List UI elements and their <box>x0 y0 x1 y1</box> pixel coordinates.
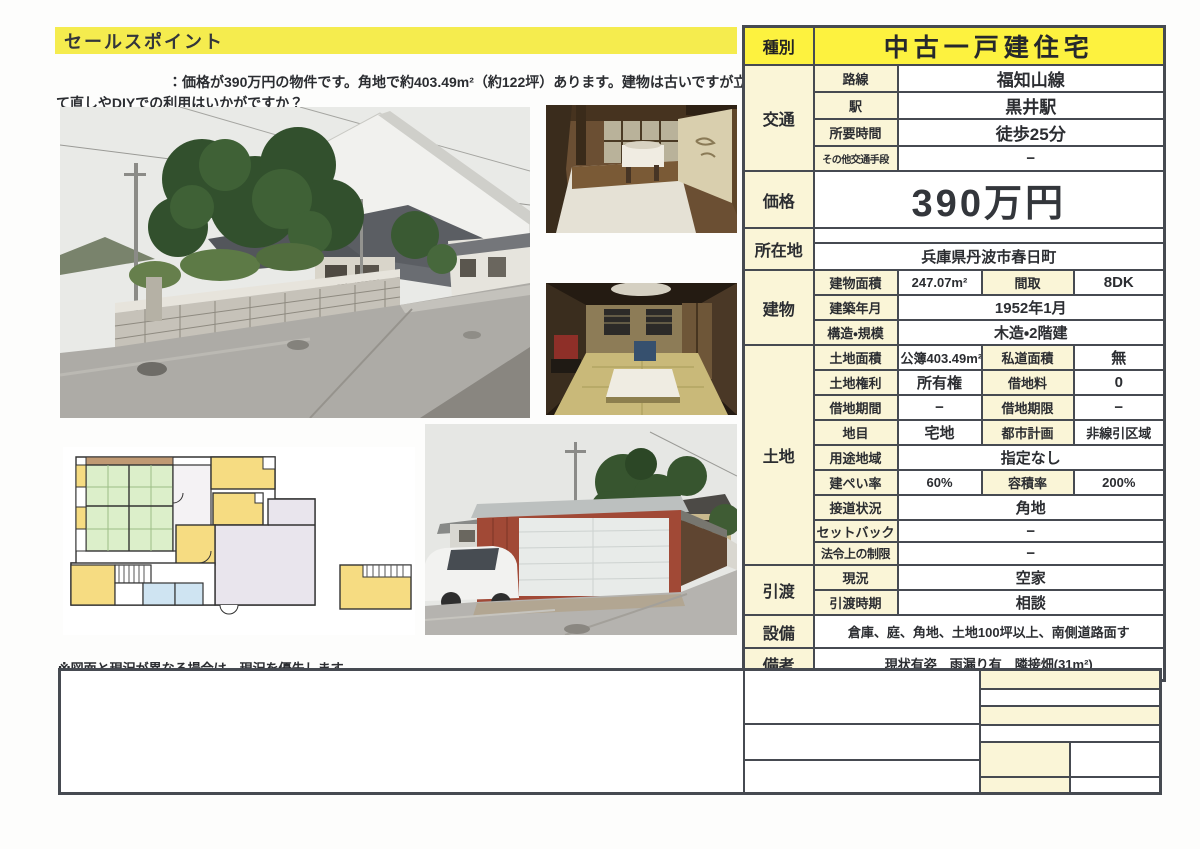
broker-grid-label-2 <box>981 778 1071 792</box>
transport-label: 交通 <box>744 65 814 171</box>
row-type: 種別 中古一戸建住宅 <box>744 27 1165 66</box>
private-road-value: 無 <box>1074 345 1165 370</box>
city-plan-label: 都市計画 <box>982 420 1074 445</box>
broker-grid-value-1 <box>1071 743 1159 776</box>
lease-limit-label: 借地期限 <box>982 395 1074 420</box>
type-value: 中古一戸建住宅 <box>814 27 1165 66</box>
land-area-label: 土地面積 <box>814 345 898 370</box>
handover-label: 引渡 <box>744 565 814 615</box>
floor-plan <box>63 447 415 635</box>
building-area-value: 247.07m² <box>898 270 982 295</box>
broker-info-block <box>58 668 1162 795</box>
type-label: 種別 <box>744 27 814 66</box>
broker-middle-column <box>743 671 979 792</box>
land-area-value: 公簿403.49m² <box>898 345 982 370</box>
land-category-value: 宅地 <box>898 420 982 445</box>
photo-interior-corridor <box>546 105 737 233</box>
coverage-ratio-label: 建ぺい率 <box>814 470 898 495</box>
built-date-label: 建築年月 <box>814 295 898 320</box>
row-handover-1: 引渡 現況 空家 <box>744 565 1165 590</box>
location-spacer <box>814 228 1165 243</box>
lease-fee-value: 0 <box>1074 370 1165 395</box>
city-plan-value: 非線引区域 <box>1074 420 1165 445</box>
land-category-label: 地目 <box>814 420 898 445</box>
setback-label: セットバック <box>814 520 898 542</box>
broker-right-strip-2 <box>981 690 1159 707</box>
walk-time-label: 所要時間 <box>814 119 898 146</box>
built-date-value: 1952年1月 <box>898 295 1165 320</box>
structure-value: 木造・2階建 <box>898 320 1165 345</box>
station-value: 黒井駅 <box>898 92 1165 119</box>
broker-grid-label-1 <box>981 743 1071 776</box>
facilities-label: 設備 <box>744 615 814 648</box>
exterior-photo-illustration <box>60 107 530 418</box>
price-label: 価格 <box>744 171 814 228</box>
row-location-spacer: 所在地 <box>744 228 1165 243</box>
walk-time-value: 徒歩25分 <box>898 119 1165 146</box>
facilities-value: 倉庫、庭、角地、土地100坪以上、南側道路面す <box>814 615 1165 648</box>
broker-right-grid-row-2 <box>981 778 1159 792</box>
current-state-label: 現況 <box>814 565 898 590</box>
line-value: 福知山線 <box>898 65 1165 92</box>
location-label: 所在地 <box>744 228 814 270</box>
private-road-label: 私道面積 <box>982 345 1074 370</box>
row-transport-line: 交通 路線 福知山線 <box>744 65 1165 92</box>
row-land-1: 土地 土地面積 公簿403.49m² 私道面積 無 <box>744 345 1165 370</box>
current-state-value: 空家 <box>898 565 1165 590</box>
interior2-photo-illustration <box>546 283 737 415</box>
land-right-label: 土地権利 <box>814 370 898 395</box>
row-price: 価格 390万円 <box>744 171 1165 228</box>
lease-period-value: − <box>898 395 982 420</box>
handover-time-value: 相談 <box>898 590 1165 615</box>
broker-right-strip-1 <box>981 671 1159 690</box>
road-contact-label: 接道状況 <box>814 495 898 520</box>
other-transport-value: − <box>898 146 1165 171</box>
property-spec-table: 種別 中古一戸建住宅 交通 路線 福知山線 駅 黒井駅 所要時間 徒歩25分 そ… <box>742 25 1166 682</box>
land-right-value: 所有権 <box>898 370 982 395</box>
broker-mid-cell-3 <box>745 761 979 792</box>
photo-interior-tatami <box>546 283 737 415</box>
price-value: 390万円 <box>814 171 1165 228</box>
floor-plan-drawing <box>63 447 415 635</box>
lease-fee-label: 借地料 <box>982 370 1074 395</box>
road-contact-value: 角地 <box>898 495 1165 520</box>
interior1-photo-illustration <box>546 105 737 233</box>
layout-value: 8DK <box>1074 270 1165 295</box>
row-building-1: 建物 建物面積 247.07m² 間取 8DK <box>744 270 1165 295</box>
legal-restriction-label: 法令上の制限 <box>814 542 898 565</box>
broker-right-column <box>979 671 1159 792</box>
floor-ratio-label: 容積率 <box>982 470 1074 495</box>
coverage-ratio-value: 60% <box>898 470 982 495</box>
location-value: 兵庫県丹波市春日町 <box>814 243 1165 270</box>
land-label: 土地 <box>744 345 814 565</box>
layout-label: 間取 <box>982 270 1074 295</box>
row-facilities: 設備 倉庫、庭、角地、土地100坪以上、南側道路面す <box>744 615 1165 648</box>
broker-mid-cell-2 <box>745 725 979 761</box>
garage-photo-illustration <box>425 424 737 635</box>
legal-restriction-value: − <box>898 542 1165 565</box>
broker-right-strip-4 <box>981 726 1159 743</box>
broker-right-grid-row-1 <box>981 743 1159 778</box>
structure-label: 構造・規模 <box>814 320 898 345</box>
photo-exterior-corner-lot <box>60 107 530 418</box>
use-district-label: 用途地域 <box>814 445 898 470</box>
station-label: 駅 <box>814 92 898 119</box>
building-label: 建物 <box>744 270 814 345</box>
handover-time-label: 引渡時期 <box>814 590 898 615</box>
broker-mid-cell-1 <box>745 671 979 725</box>
use-district-value: 指定なし <box>898 445 1165 470</box>
photo-garage <box>425 424 737 635</box>
other-transport-label: その他交通手段 <box>814 146 898 171</box>
sales-point-header: セールスポイント <box>55 27 737 54</box>
floor-ratio-value: 200% <box>1074 470 1165 495</box>
broker-grid-value-2 <box>1071 778 1159 792</box>
broker-right-strip-3 <box>981 707 1159 726</box>
setback-value: − <box>898 520 1165 542</box>
sales-point-title: セールスポイント <box>64 28 224 54</box>
lease-period-label: 借地期間 <box>814 395 898 420</box>
broker-left-empty-box <box>61 671 743 792</box>
lease-limit-value: − <box>1074 395 1165 420</box>
line-label: 路線 <box>814 65 898 92</box>
building-area-label: 建物面積 <box>814 270 898 295</box>
flyer-page: セールスポイント ：価格が390万円の物件です。角地で約403.49m²（約12… <box>0 0 1200 849</box>
